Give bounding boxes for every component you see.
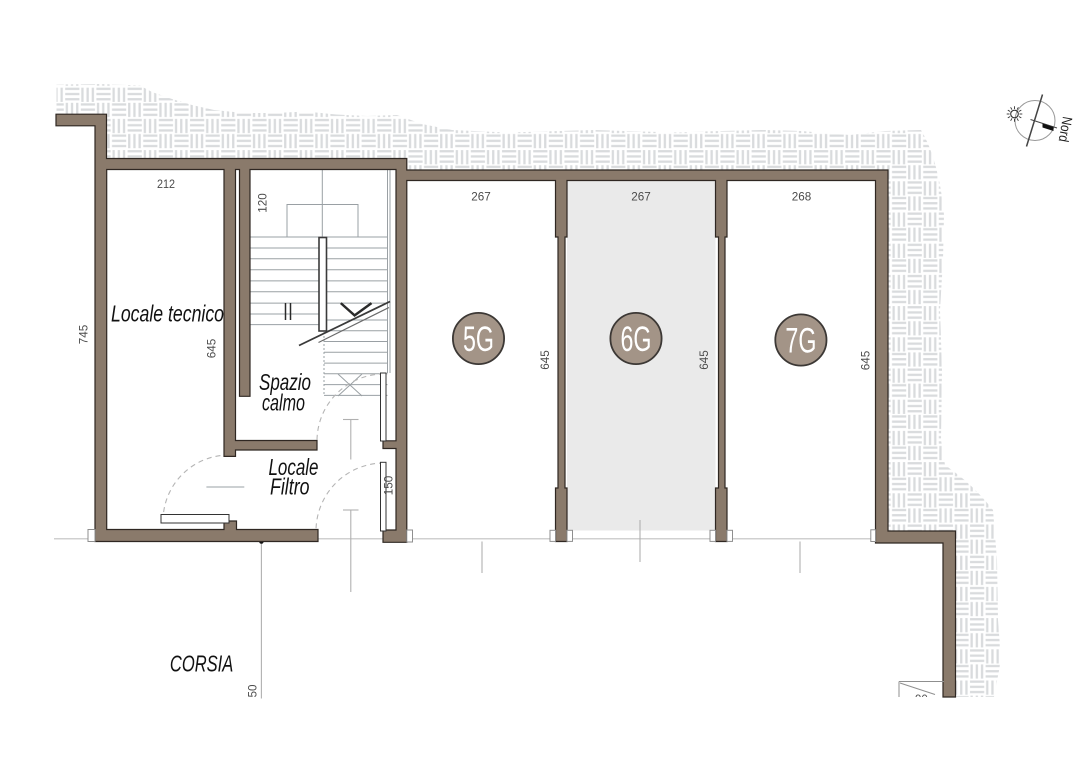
svg-text:5G: 5G xyxy=(463,320,494,359)
svg-text:645: 645 xyxy=(861,351,873,371)
svg-text:Nord: Nord xyxy=(1056,115,1076,143)
svg-text:150: 150 xyxy=(384,476,396,496)
svg-text:90: 90 xyxy=(915,694,928,706)
svg-text:6G: 6G xyxy=(621,320,652,359)
svg-text:50: 50 xyxy=(248,685,260,698)
svg-text:645: 645 xyxy=(540,350,552,370)
svg-text:267: 267 xyxy=(631,191,651,203)
svg-text:CORSIA: CORSIA xyxy=(170,650,233,676)
svg-text:268: 268 xyxy=(792,191,812,203)
svg-text:745: 745 xyxy=(79,325,91,345)
svg-text:calmo: calmo xyxy=(262,390,305,416)
svg-text:Filtro: Filtro xyxy=(270,474,310,500)
svg-text:Locale tecnico: Locale tecnico xyxy=(111,301,224,327)
svg-text:267: 267 xyxy=(471,191,491,203)
svg-text:645: 645 xyxy=(699,350,711,370)
svg-text:645: 645 xyxy=(207,339,219,359)
svg-text:7G: 7G xyxy=(785,322,816,361)
svg-text:212: 212 xyxy=(157,179,175,191)
svg-text:120: 120 xyxy=(257,193,269,213)
